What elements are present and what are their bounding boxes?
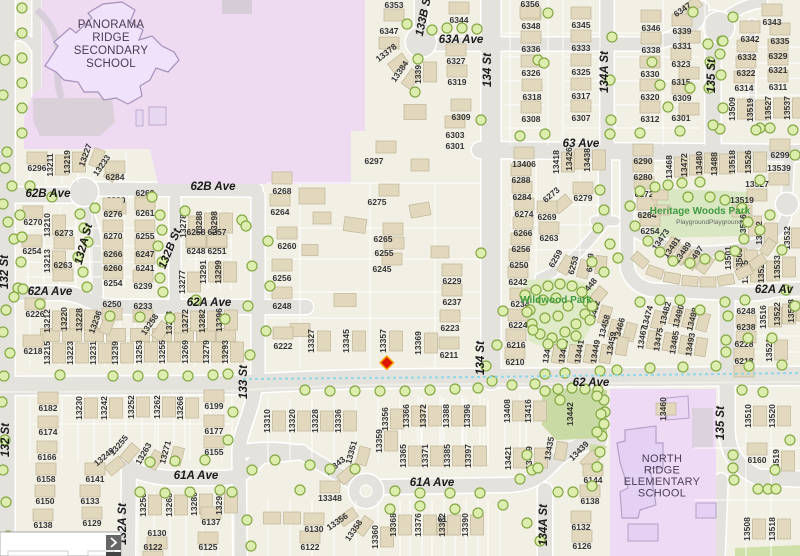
svg-text:61A Ave: 61A Ave — [174, 470, 219, 482]
svg-text:6274: 6274 — [515, 209, 534, 219]
svg-text:6238: 6238 — [737, 322, 756, 332]
svg-text:6342: 6342 — [741, 34, 760, 44]
svg-text:6312: 6312 — [641, 114, 660, 124]
svg-text:13519: 13519 — [745, 98, 755, 122]
svg-text:6270: 6270 — [104, 231, 123, 241]
svg-text:6288: 6288 — [512, 175, 531, 185]
svg-text:13357: 13357 — [378, 329, 388, 353]
svg-text:6270: 6270 — [24, 217, 43, 227]
svg-text:6255: 6255 — [375, 248, 394, 258]
svg-text:13210: 13210 — [42, 213, 52, 237]
svg-text:13372: 13372 — [418, 404, 428, 428]
svg-text:62B Ave: 62B Ave — [191, 181, 237, 193]
svg-text:6264: 6264 — [271, 207, 290, 217]
svg-text:63 Ave: 63 Ave — [563, 138, 600, 150]
svg-text:6160: 6160 — [748, 455, 767, 465]
svg-text:6346: 6346 — [642, 23, 661, 33]
svg-text:6319: 6319 — [448, 77, 467, 87]
svg-text:6333: 6333 — [572, 43, 591, 53]
svg-text:6331: 6331 — [673, 41, 692, 51]
svg-text:6166: 6166 — [38, 452, 57, 462]
svg-text:13408: 13408 — [502, 399, 512, 423]
svg-text:6256: 6256 — [512, 244, 531, 254]
svg-text:6320: 6320 — [641, 92, 660, 102]
svg-text:6258: 6258 — [187, 227, 206, 237]
svg-text:6317: 6317 — [572, 91, 591, 101]
svg-text:13299: 13299 — [213, 260, 223, 284]
svg-text:6138: 6138 — [34, 520, 53, 530]
svg-text:ELEMENTARY: ELEMENTARY — [624, 476, 701, 488]
svg-text:13328: 13328 — [310, 409, 320, 433]
svg-text:6255: 6255 — [136, 231, 155, 241]
svg-text:62B Ave: 62B Ave — [26, 188, 72, 200]
svg-text:6321: 6321 — [769, 65, 788, 75]
svg-text:13368: 13368 — [388, 513, 398, 537]
svg-text:13397: 13397 — [463, 444, 473, 468]
svg-text:13345: 13345 — [341, 329, 351, 353]
svg-text:6279: 6279 — [574, 193, 593, 203]
svg-text:6158: 6158 — [37, 474, 56, 484]
svg-text:13327: 13327 — [306, 329, 316, 353]
svg-text:6347: 6347 — [380, 26, 399, 36]
svg-text:13522: 13522 — [772, 302, 782, 326]
svg-text:13228: 13228 — [74, 308, 84, 332]
svg-text:6133: 6133 — [81, 496, 100, 506]
svg-text:6242: 6242 — [509, 277, 528, 287]
svg-text:6141: 6141 — [86, 474, 105, 484]
svg-text:6137: 6137 — [202, 517, 221, 527]
svg-text:13442: 13442 — [565, 402, 575, 426]
svg-text:13371: 13371 — [420, 444, 430, 468]
svg-text:63A Ave: 63A Ave — [439, 34, 484, 46]
svg-text:6261: 6261 — [136, 208, 155, 218]
svg-text:6284: 6284 — [513, 192, 532, 202]
svg-text:6330: 6330 — [641, 69, 660, 79]
svg-text:13376: 13376 — [413, 513, 423, 537]
svg-text:6307: 6307 — [572, 113, 591, 123]
svg-text:6210: 6210 — [506, 357, 525, 367]
svg-text:13211: 13211 — [45, 153, 55, 176]
svg-text:6308: 6308 — [522, 114, 541, 124]
svg-text:13253: 13253 — [134, 340, 144, 364]
svg-text:6257: 6257 — [208, 227, 227, 237]
svg-text:6303: 6303 — [446, 130, 465, 140]
svg-text:6348: 6348 — [522, 21, 541, 31]
svg-text:13255: 13255 — [157, 340, 167, 364]
svg-text:13320: 13320 — [287, 409, 297, 433]
svg-text:13356: 13356 — [380, 407, 390, 431]
svg-text:13508: 13508 — [742, 517, 752, 541]
svg-text:6216: 6216 — [507, 340, 526, 350]
svg-text:13252: 13252 — [126, 395, 136, 419]
svg-text:6229: 6229 — [443, 276, 462, 286]
svg-text:6239: 6239 — [134, 281, 153, 291]
svg-text:6174: 6174 — [39, 427, 58, 437]
svg-text:6314: 6314 — [735, 83, 754, 93]
svg-text:6309: 6309 — [673, 93, 692, 103]
svg-text:6332: 6332 — [738, 52, 757, 62]
svg-text:13262: 13262 — [152, 395, 162, 419]
svg-text:13215: 13215 — [42, 341, 52, 365]
svg-text:13369: 13369 — [413, 331, 423, 355]
svg-text:6126: 6126 — [573, 541, 592, 551]
svg-text:6263: 6263 — [540, 233, 559, 243]
svg-text:13269: 13269 — [180, 340, 190, 364]
svg-text:6233: 6233 — [134, 301, 153, 311]
svg-text:13282: 13282 — [197, 309, 207, 333]
svg-text:6247: 6247 — [136, 249, 155, 259]
svg-text:PlaygroundPlayground: PlaygroundPlayground — [676, 219, 742, 226]
svg-text:6266: 6266 — [104, 249, 123, 259]
svg-text:13382: 13382 — [437, 513, 447, 537]
svg-text:6250: 6250 — [103, 299, 122, 309]
svg-text:134A St: 134A St — [538, 503, 550, 546]
svg-text:13231: 13231 — [88, 341, 98, 365]
svg-text:SCHOOL: SCHOOL — [638, 488, 686, 500]
svg-text:6132: 6132 — [572, 522, 591, 532]
svg-text:134 St: 134 St — [482, 52, 494, 87]
svg-text:6265: 6265 — [374, 234, 393, 244]
svg-text:6323: 6323 — [672, 59, 691, 69]
svg-text:13468: 13468 — [664, 155, 674, 179]
svg-text:6245: 6245 — [373, 264, 392, 274]
svg-text:13527: 13527 — [763, 96, 773, 120]
svg-text:6301: 6301 — [672, 113, 691, 123]
svg-text:6138: 6138 — [581, 496, 600, 506]
svg-text:PANORAMA: PANORAMA — [78, 19, 145, 31]
svg-text:6290: 6290 — [634, 156, 653, 166]
svg-text:RIDGE: RIDGE — [92, 32, 130, 44]
svg-text:62A Ave: 62A Ave — [187, 297, 232, 309]
svg-text:13223: 13223 — [65, 341, 75, 365]
svg-text:6130: 6130 — [148, 528, 167, 538]
svg-text:133 St: 133 St — [238, 364, 250, 399]
svg-text:13520: 13520 — [767, 404, 777, 428]
svg-text:13385: 13385 — [442, 444, 452, 468]
svg-text:6343: 6343 — [763, 17, 782, 27]
svg-text:134A St: 134A St — [599, 50, 611, 93]
svg-text:6356: 6356 — [521, 0, 540, 9]
svg-text:6122: 6122 — [144, 542, 163, 552]
svg-text:6211: 6211 — [440, 350, 459, 360]
svg-text:13279: 13279 — [201, 340, 211, 364]
svg-text:13310: 13310 — [262, 409, 272, 433]
svg-text:6150: 6150 — [36, 496, 55, 506]
svg-text:13416: 13416 — [523, 399, 533, 423]
svg-text:6327: 6327 — [447, 56, 466, 66]
svg-text:6353: 6353 — [385, 0, 404, 10]
svg-text:13421: 13421 — [503, 446, 513, 470]
svg-text:13488: 13488 — [709, 152, 719, 176]
svg-text:6275: 6275 — [368, 197, 387, 207]
svg-text:6299: 6299 — [771, 150, 790, 160]
svg-text:13212: 13212 — [42, 309, 52, 333]
svg-text:6254: 6254 — [23, 246, 42, 256]
svg-text:13220: 13220 — [59, 307, 69, 331]
svg-text:13291: 13291 — [198, 260, 208, 284]
svg-text:134 St: 134 St — [475, 340, 487, 375]
svg-text:13366: 13366 — [401, 404, 411, 428]
svg-text:13390: 13390 — [460, 513, 470, 537]
svg-text:13266: 13266 — [175, 396, 185, 420]
svg-text:6329: 6329 — [769, 51, 788, 61]
svg-text:6335: 6335 — [771, 36, 790, 46]
svg-text:6296: 6296 — [28, 163, 47, 173]
svg-text:SCHOOL: SCHOOL — [86, 58, 136, 70]
svg-text:6284: 6284 — [106, 172, 125, 182]
svg-text:6297: 6297 — [365, 156, 384, 166]
svg-text:6309: 6309 — [452, 112, 471, 122]
svg-text:6182: 6182 — [39, 403, 58, 413]
svg-text:13272: 13272 — [180, 309, 190, 333]
svg-text:6268: 6268 — [273, 186, 292, 196]
svg-text:6254: 6254 — [104, 278, 123, 288]
svg-text:13516: 13516 — [758, 305, 768, 329]
svg-text:13510: 13510 — [743, 404, 753, 428]
svg-text:13460: 13460 — [658, 397, 668, 421]
svg-text:Wildwood Park: Wildwood Park — [520, 295, 592, 306]
svg-text:13518: 13518 — [727, 150, 737, 174]
svg-text:6322: 6322 — [737, 68, 756, 78]
svg-text:6338: 6338 — [642, 45, 661, 55]
svg-text:13293: 13293 — [220, 340, 230, 364]
svg-text:6125: 6125 — [199, 542, 218, 552]
svg-text:6345: 6345 — [572, 20, 591, 30]
svg-text:13365: 13365 — [398, 444, 408, 468]
svg-text:61A Ave: 61A Ave — [410, 477, 455, 489]
svg-text:6326: 6326 — [522, 68, 541, 78]
svg-text:135 St: 135 St — [706, 58, 718, 93]
svg-text:6251: 6251 — [208, 246, 227, 256]
svg-text:13336: 13336 — [333, 409, 343, 433]
svg-text:6325: 6325 — [572, 67, 591, 77]
svg-text:6273: 6273 — [55, 228, 74, 238]
svg-text:13518: 13518 — [767, 517, 777, 541]
svg-text:13526: 13526 — [743, 150, 753, 174]
svg-text:13230: 13230 — [74, 396, 84, 420]
svg-text:6241: 6241 — [136, 263, 155, 273]
svg-text:6129: 6129 — [83, 518, 102, 528]
svg-text:135 St: 135 St — [715, 405, 727, 440]
svg-text:6122: 6122 — [301, 542, 320, 552]
svg-text:13418: 13418 — [551, 150, 561, 174]
svg-text:13277: 13277 — [177, 270, 187, 294]
svg-text:6250: 6250 — [510, 260, 529, 270]
svg-text:13539: 13539 — [767, 163, 791, 173]
svg-text:Heritage Woods Park: Heritage Woods Park — [650, 206, 751, 217]
svg-text:6339: 6339 — [673, 26, 692, 36]
svg-text:6260: 6260 — [104, 263, 123, 273]
svg-text:6263: 6263 — [54, 260, 73, 270]
svg-text:13438: 13438 — [582, 148, 592, 172]
svg-text:6256: 6256 — [273, 273, 292, 283]
svg-text:6269: 6269 — [538, 212, 557, 222]
svg-text:6260: 6260 — [278, 241, 297, 251]
svg-text:6222: 6222 — [274, 341, 293, 351]
svg-text:132 St: 132 St — [0, 254, 11, 289]
svg-text:62A Av: 62A Av — [755, 284, 794, 296]
svg-text:6266: 6266 — [514, 228, 533, 238]
svg-text:13239: 13239 — [110, 341, 120, 365]
svg-text:13359: 13359 — [374, 429, 384, 453]
svg-text:6336: 6336 — [522, 44, 541, 54]
svg-text:62A Ave: 62A Ave — [28, 286, 73, 298]
svg-text:13213: 13213 — [42, 249, 52, 273]
svg-text:6280: 6280 — [634, 172, 653, 182]
svg-text:6224: 6224 — [509, 320, 528, 330]
svg-text:6199: 6199 — [205, 401, 224, 411]
svg-text:6237: 6237 — [443, 297, 462, 307]
svg-text:6318: 6318 — [523, 92, 542, 102]
svg-text:6276: 6276 — [104, 209, 123, 219]
svg-text:13348: 13348 — [318, 493, 342, 503]
svg-text:13242: 13242 — [99, 396, 109, 420]
svg-text:13396: 13396 — [462, 404, 472, 428]
svg-text:6248: 6248 — [187, 246, 206, 256]
svg-text:13480: 13480 — [694, 151, 704, 175]
svg-text:6130: 6130 — [305, 524, 324, 534]
svg-text:13360: 13360 — [370, 525, 380, 549]
svg-text:6223: 6223 — [441, 323, 460, 333]
svg-text:13406: 13406 — [512, 159, 536, 169]
svg-text:13533: 13533 — [772, 255, 782, 279]
svg-text:6248: 6248 — [273, 301, 292, 311]
svg-text:6311: 6311 — [769, 82, 788, 92]
svg-text:13472: 13472 — [679, 153, 689, 177]
svg-text:SECONDARY: SECONDARY — [74, 45, 149, 57]
svg-text:6218: 6218 — [24, 346, 43, 356]
svg-text:62 Ave: 62 Ave — [573, 377, 610, 389]
svg-text:6248: 6248 — [737, 306, 756, 316]
svg-text:RIDGE: RIDGE — [644, 465, 680, 477]
svg-text:13426: 13426 — [564, 147, 574, 171]
svg-text:NORTH: NORTH — [642, 453, 682, 465]
svg-text:13219: 13219 — [62, 150, 72, 174]
svg-text:6177: 6177 — [205, 426, 224, 436]
svg-text:13537: 13537 — [782, 96, 792, 120]
svg-text:6301: 6301 — [446, 141, 465, 151]
svg-text:13388: 13388 — [441, 404, 451, 428]
svg-text:132 St: 132 St — [0, 422, 12, 457]
